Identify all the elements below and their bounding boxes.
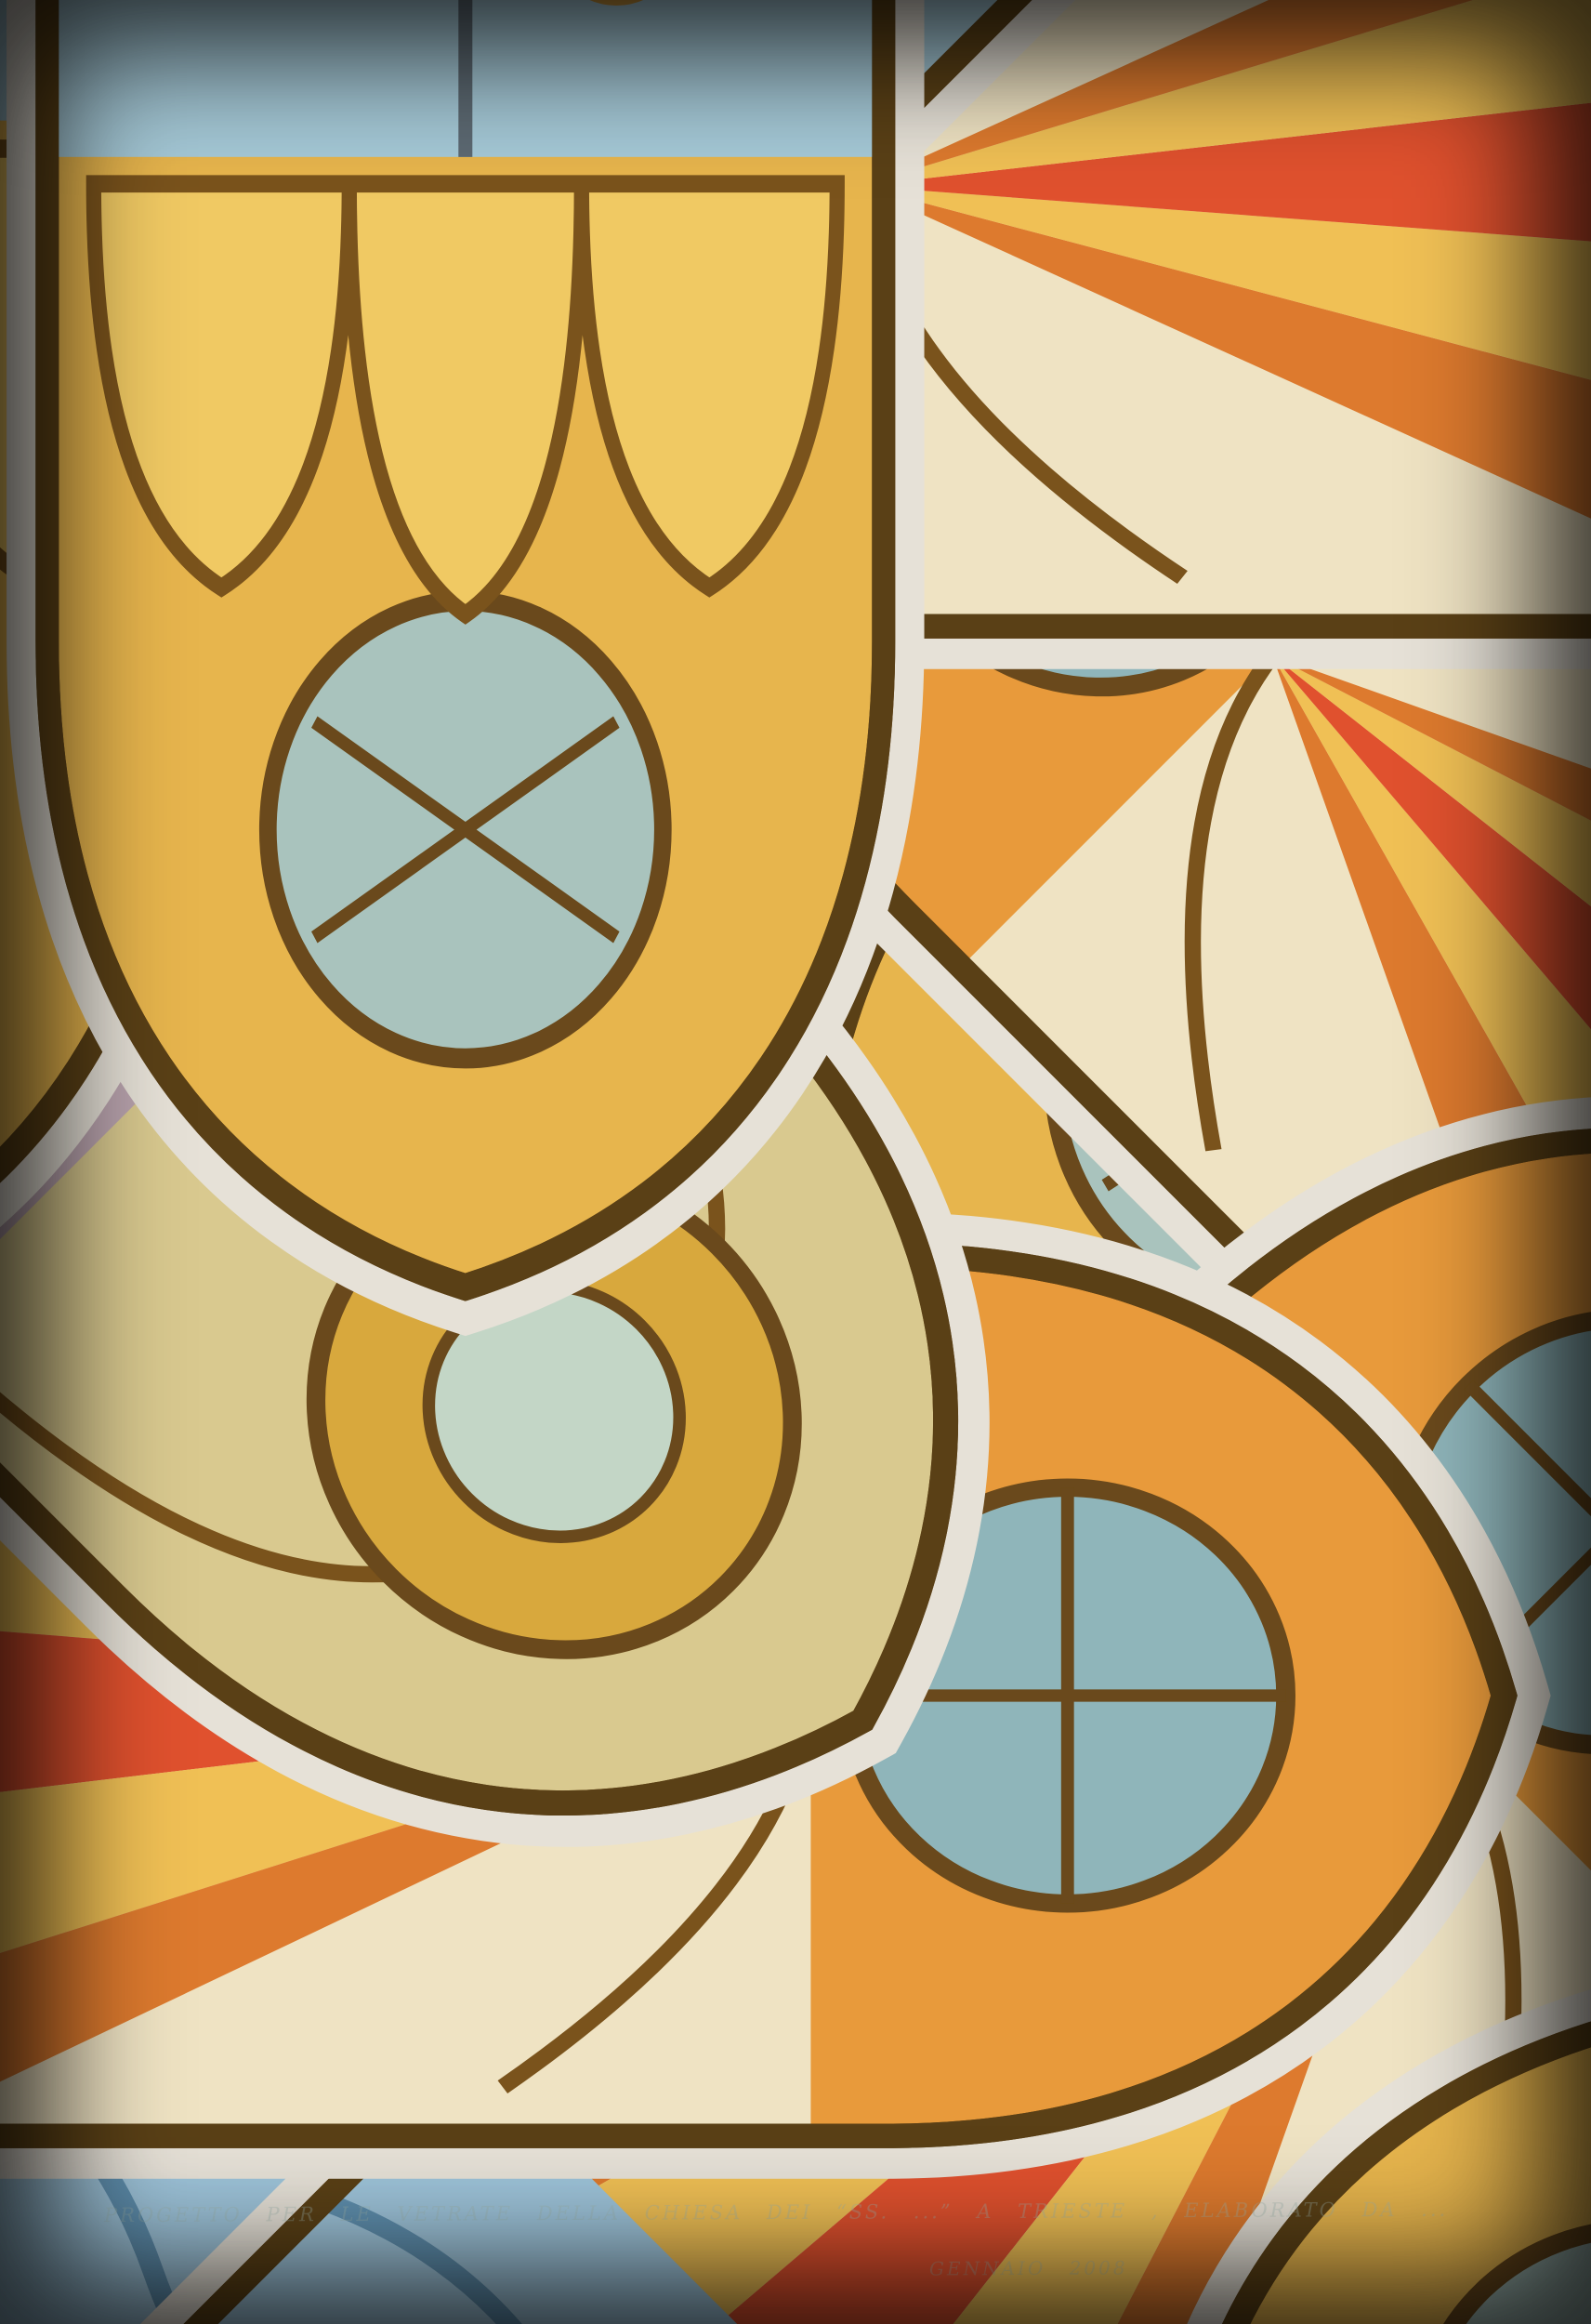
- caption-line-2: GENNAIO 2008: [929, 2257, 1128, 2280]
- stained-glass-windows: [0, 0, 1591, 2324]
- presentation-board: INQUADRAMENTO GENERALE PIANTA: [0, 0, 1591, 2324]
- floor-plan: UFFICI UFFICI CENTRALE TERMICA W.C. ALTA…: [0, 0, 1591, 2324]
- stained-glass-window-right-nave: [47, 0, 884, 1287]
